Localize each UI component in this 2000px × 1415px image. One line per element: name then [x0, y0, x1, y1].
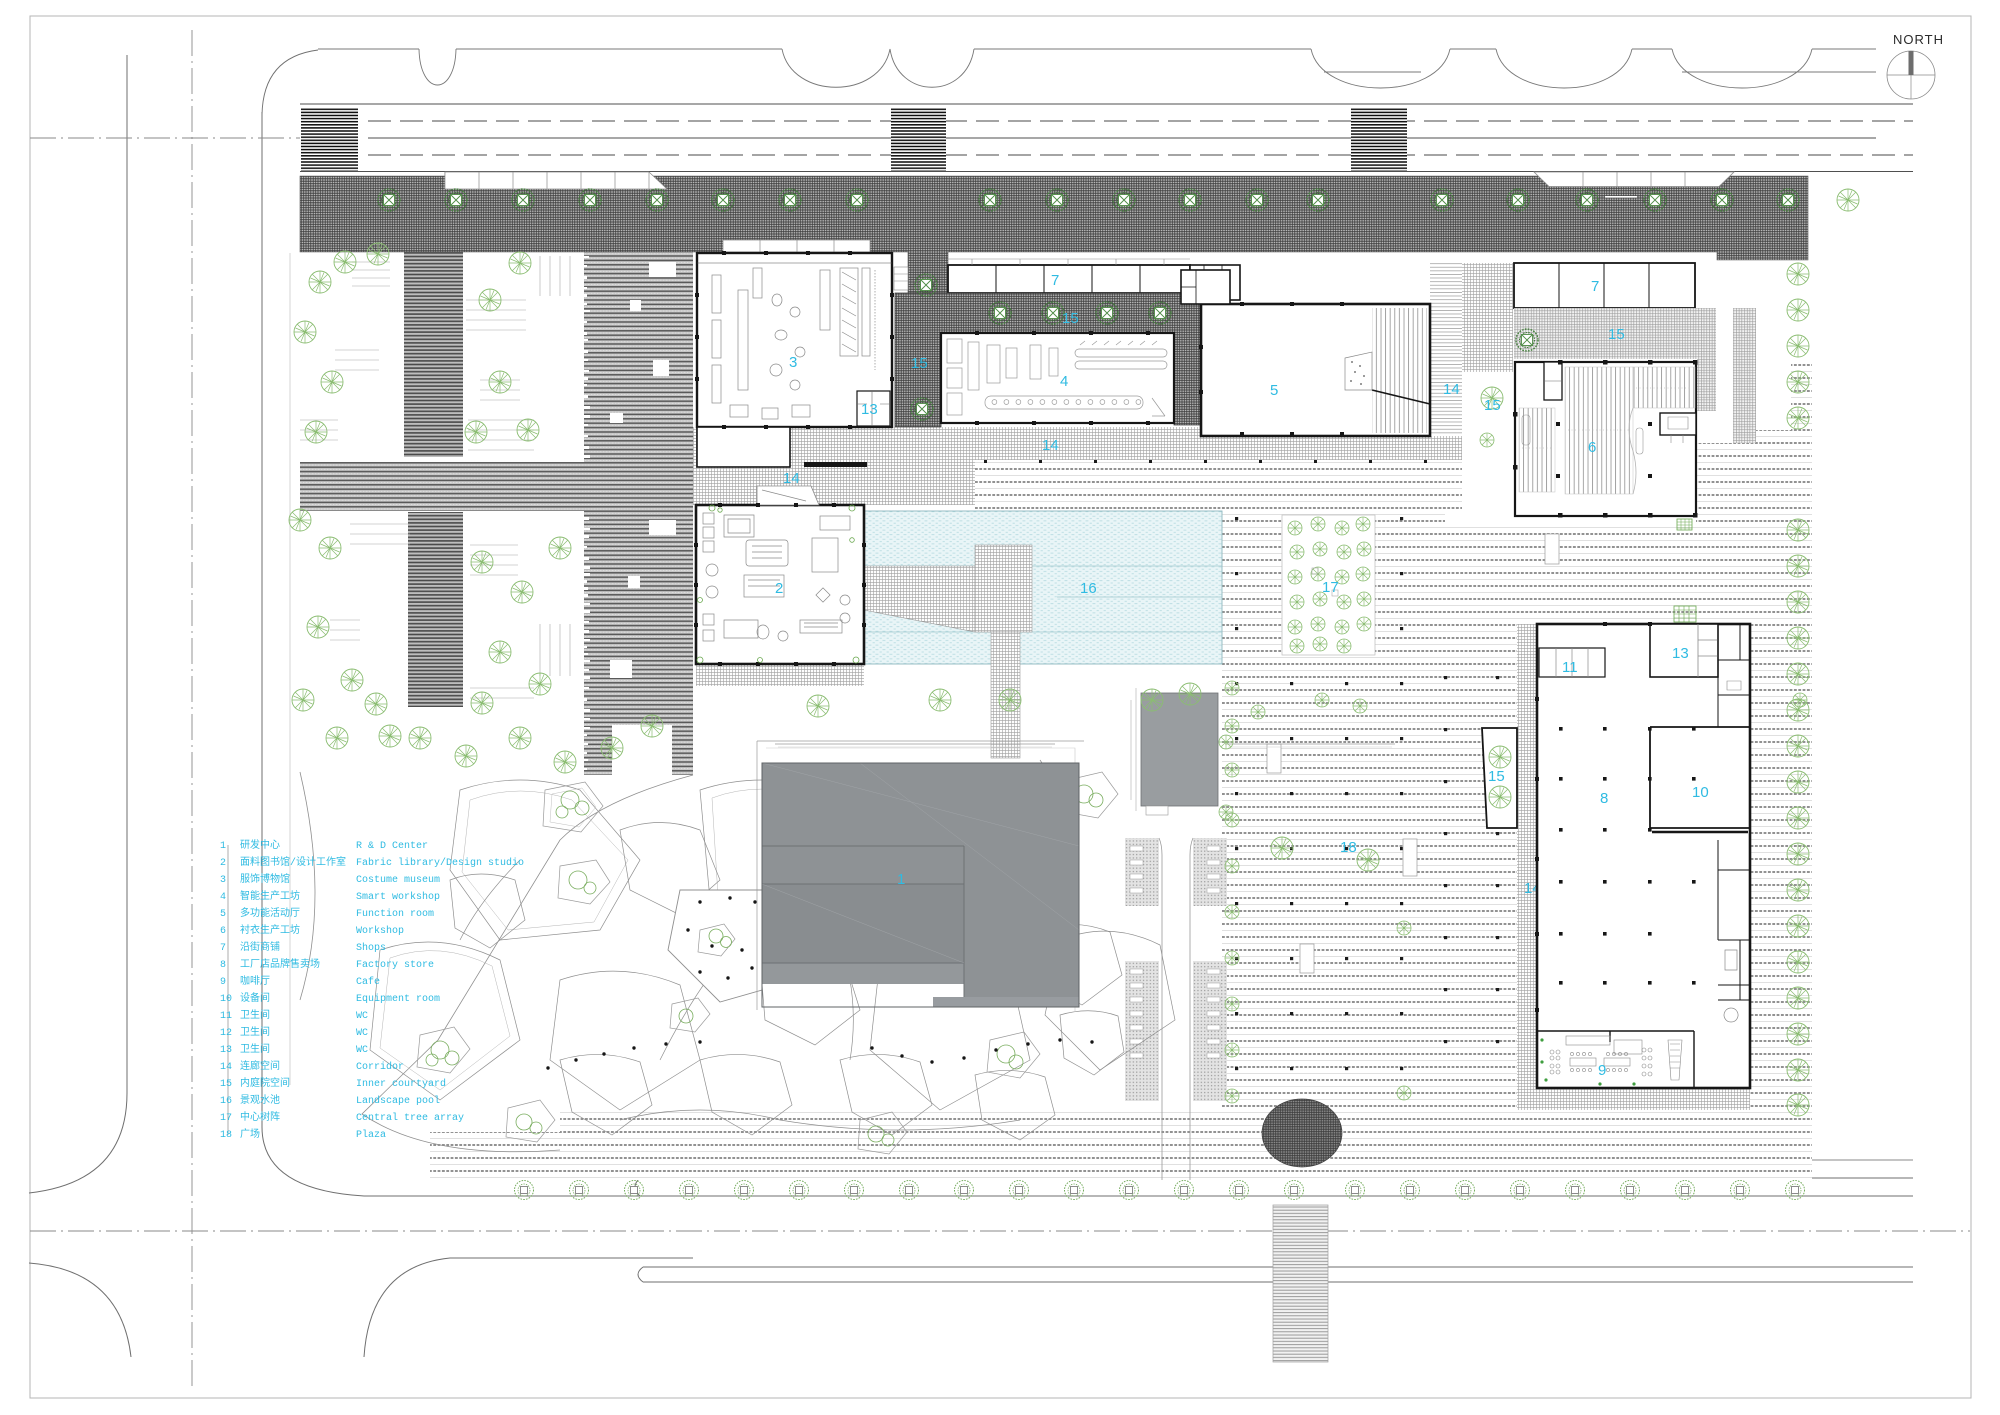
svg-text:15: 15	[911, 355, 928, 372]
svg-text:4: 4	[220, 892, 226, 903]
svg-text:景观水池: 景观水池	[240, 1093, 280, 1107]
svg-text:Inner courtyard: Inner courtyard	[356, 1078, 446, 1090]
svg-text:14: 14	[1042, 437, 1059, 454]
svg-text:15: 15	[1488, 768, 1505, 785]
svg-text:Plaza: Plaza	[356, 1129, 386, 1141]
svg-text:2: 2	[220, 858, 226, 869]
svg-text:3: 3	[789, 354, 797, 371]
svg-text:1: 1	[220, 841, 226, 852]
svg-text:中心树阵: 中心树阵	[240, 1110, 280, 1124]
svg-text:13: 13	[220, 1045, 232, 1056]
svg-text:7: 7	[220, 943, 226, 954]
svg-text:广场: 广场	[240, 1127, 260, 1141]
svg-text:Equipment room: Equipment room	[356, 993, 440, 1005]
svg-text:WC: WC	[356, 1045, 368, 1056]
svg-text:Landscape pool: Landscape pool	[356, 1095, 440, 1107]
svg-text:7: 7	[1591, 278, 1599, 295]
svg-text:14: 14	[220, 1062, 232, 1073]
svg-text:Shops: Shops	[356, 942, 386, 954]
svg-text:卫生间: 卫生间	[240, 1025, 270, 1039]
svg-text:15: 15	[1062, 310, 1079, 327]
svg-text:智能生产工坊: 智能生产工坊	[240, 889, 300, 903]
svg-text:2: 2	[775, 580, 783, 597]
svg-text:设备间: 设备间	[240, 991, 270, 1005]
svg-text:Smart workshop: Smart workshop	[356, 891, 440, 903]
svg-text:8: 8	[1600, 790, 1608, 807]
svg-text:面料图书馆/设计工作室: 面料图书馆/设计工作室	[240, 855, 346, 869]
svg-text:1: 1	[897, 871, 905, 888]
svg-text:10: 10	[220, 994, 232, 1005]
svg-text:内庭院空间: 内庭院空间	[240, 1076, 290, 1090]
svg-text:卫生间: 卫生间	[240, 1008, 270, 1022]
svg-text:3: 3	[220, 875, 226, 886]
svg-text:10: 10	[1692, 784, 1709, 801]
svg-text:咖啡厅: 咖啡厅	[240, 975, 270, 988]
svg-text:多功能活动厅: 多功能活动厅	[240, 906, 300, 920]
svg-text:服饰博物馆: 服饰博物馆	[240, 872, 290, 886]
svg-text:18: 18	[220, 1130, 232, 1141]
svg-text:15: 15	[1608, 326, 1625, 343]
svg-text:WC: WC	[356, 1028, 368, 1039]
svg-text:连廊空间: 连廊空间	[240, 1059, 280, 1073]
svg-text:13: 13	[1672, 645, 1689, 662]
svg-text:5: 5	[220, 909, 226, 920]
svg-text:15: 15	[1484, 397, 1501, 414]
svg-text:Corridor: Corridor	[356, 1061, 404, 1073]
svg-text:11: 11	[1562, 659, 1578, 676]
svg-text:Cafe: Cafe	[356, 976, 380, 988]
svg-text:衬衣生产工坊: 衬衣生产工坊	[240, 923, 300, 937]
svg-text:18: 18	[1340, 839, 1357, 856]
svg-text:Workshop: Workshop	[356, 925, 404, 937]
svg-text:16: 16	[1080, 580, 1097, 597]
svg-text:16: 16	[220, 1096, 232, 1107]
svg-text:11: 11	[220, 1011, 232, 1022]
svg-text:14: 14	[1443, 381, 1460, 398]
svg-text:NORTH: NORTH	[1893, 32, 1944, 47]
svg-text:Factory store: Factory store	[356, 960, 434, 971]
svg-text:17: 17	[220, 1113, 232, 1124]
svg-text:沿街商铺: 沿街商铺	[240, 940, 280, 954]
svg-text:R & D Center: R & D Center	[356, 841, 428, 852]
svg-text:17: 17	[1322, 579, 1339, 596]
svg-text:卫生间: 卫生间	[240, 1042, 270, 1056]
svg-text:WC: WC	[356, 1011, 368, 1022]
svg-text:5: 5	[1270, 382, 1278, 399]
svg-text:6: 6	[1588, 439, 1596, 456]
svg-text:9: 9	[1598, 1062, 1606, 1079]
svg-text:Costume museum: Costume museum	[356, 875, 440, 886]
svg-text:6: 6	[220, 926, 226, 937]
svg-text:Function room: Function room	[356, 908, 434, 920]
svg-text:Fabric library/Design studio: Fabric library/Design studio	[356, 857, 524, 869]
svg-text:8: 8	[220, 960, 226, 971]
svg-text:工厂店品牌售卖场: 工厂店品牌售卖场	[240, 957, 320, 971]
svg-text:Central tree array: Central tree array	[356, 1112, 464, 1124]
svg-text:研发中心: 研发中心	[240, 838, 280, 852]
svg-text:7: 7	[1051, 272, 1059, 289]
svg-text:13: 13	[861, 401, 878, 418]
svg-text:4: 4	[1060, 373, 1068, 390]
svg-text:9: 9	[220, 977, 226, 988]
svg-text:15: 15	[220, 1079, 232, 1090]
svg-text:12: 12	[220, 1028, 232, 1039]
svg-text:14: 14	[783, 470, 800, 487]
